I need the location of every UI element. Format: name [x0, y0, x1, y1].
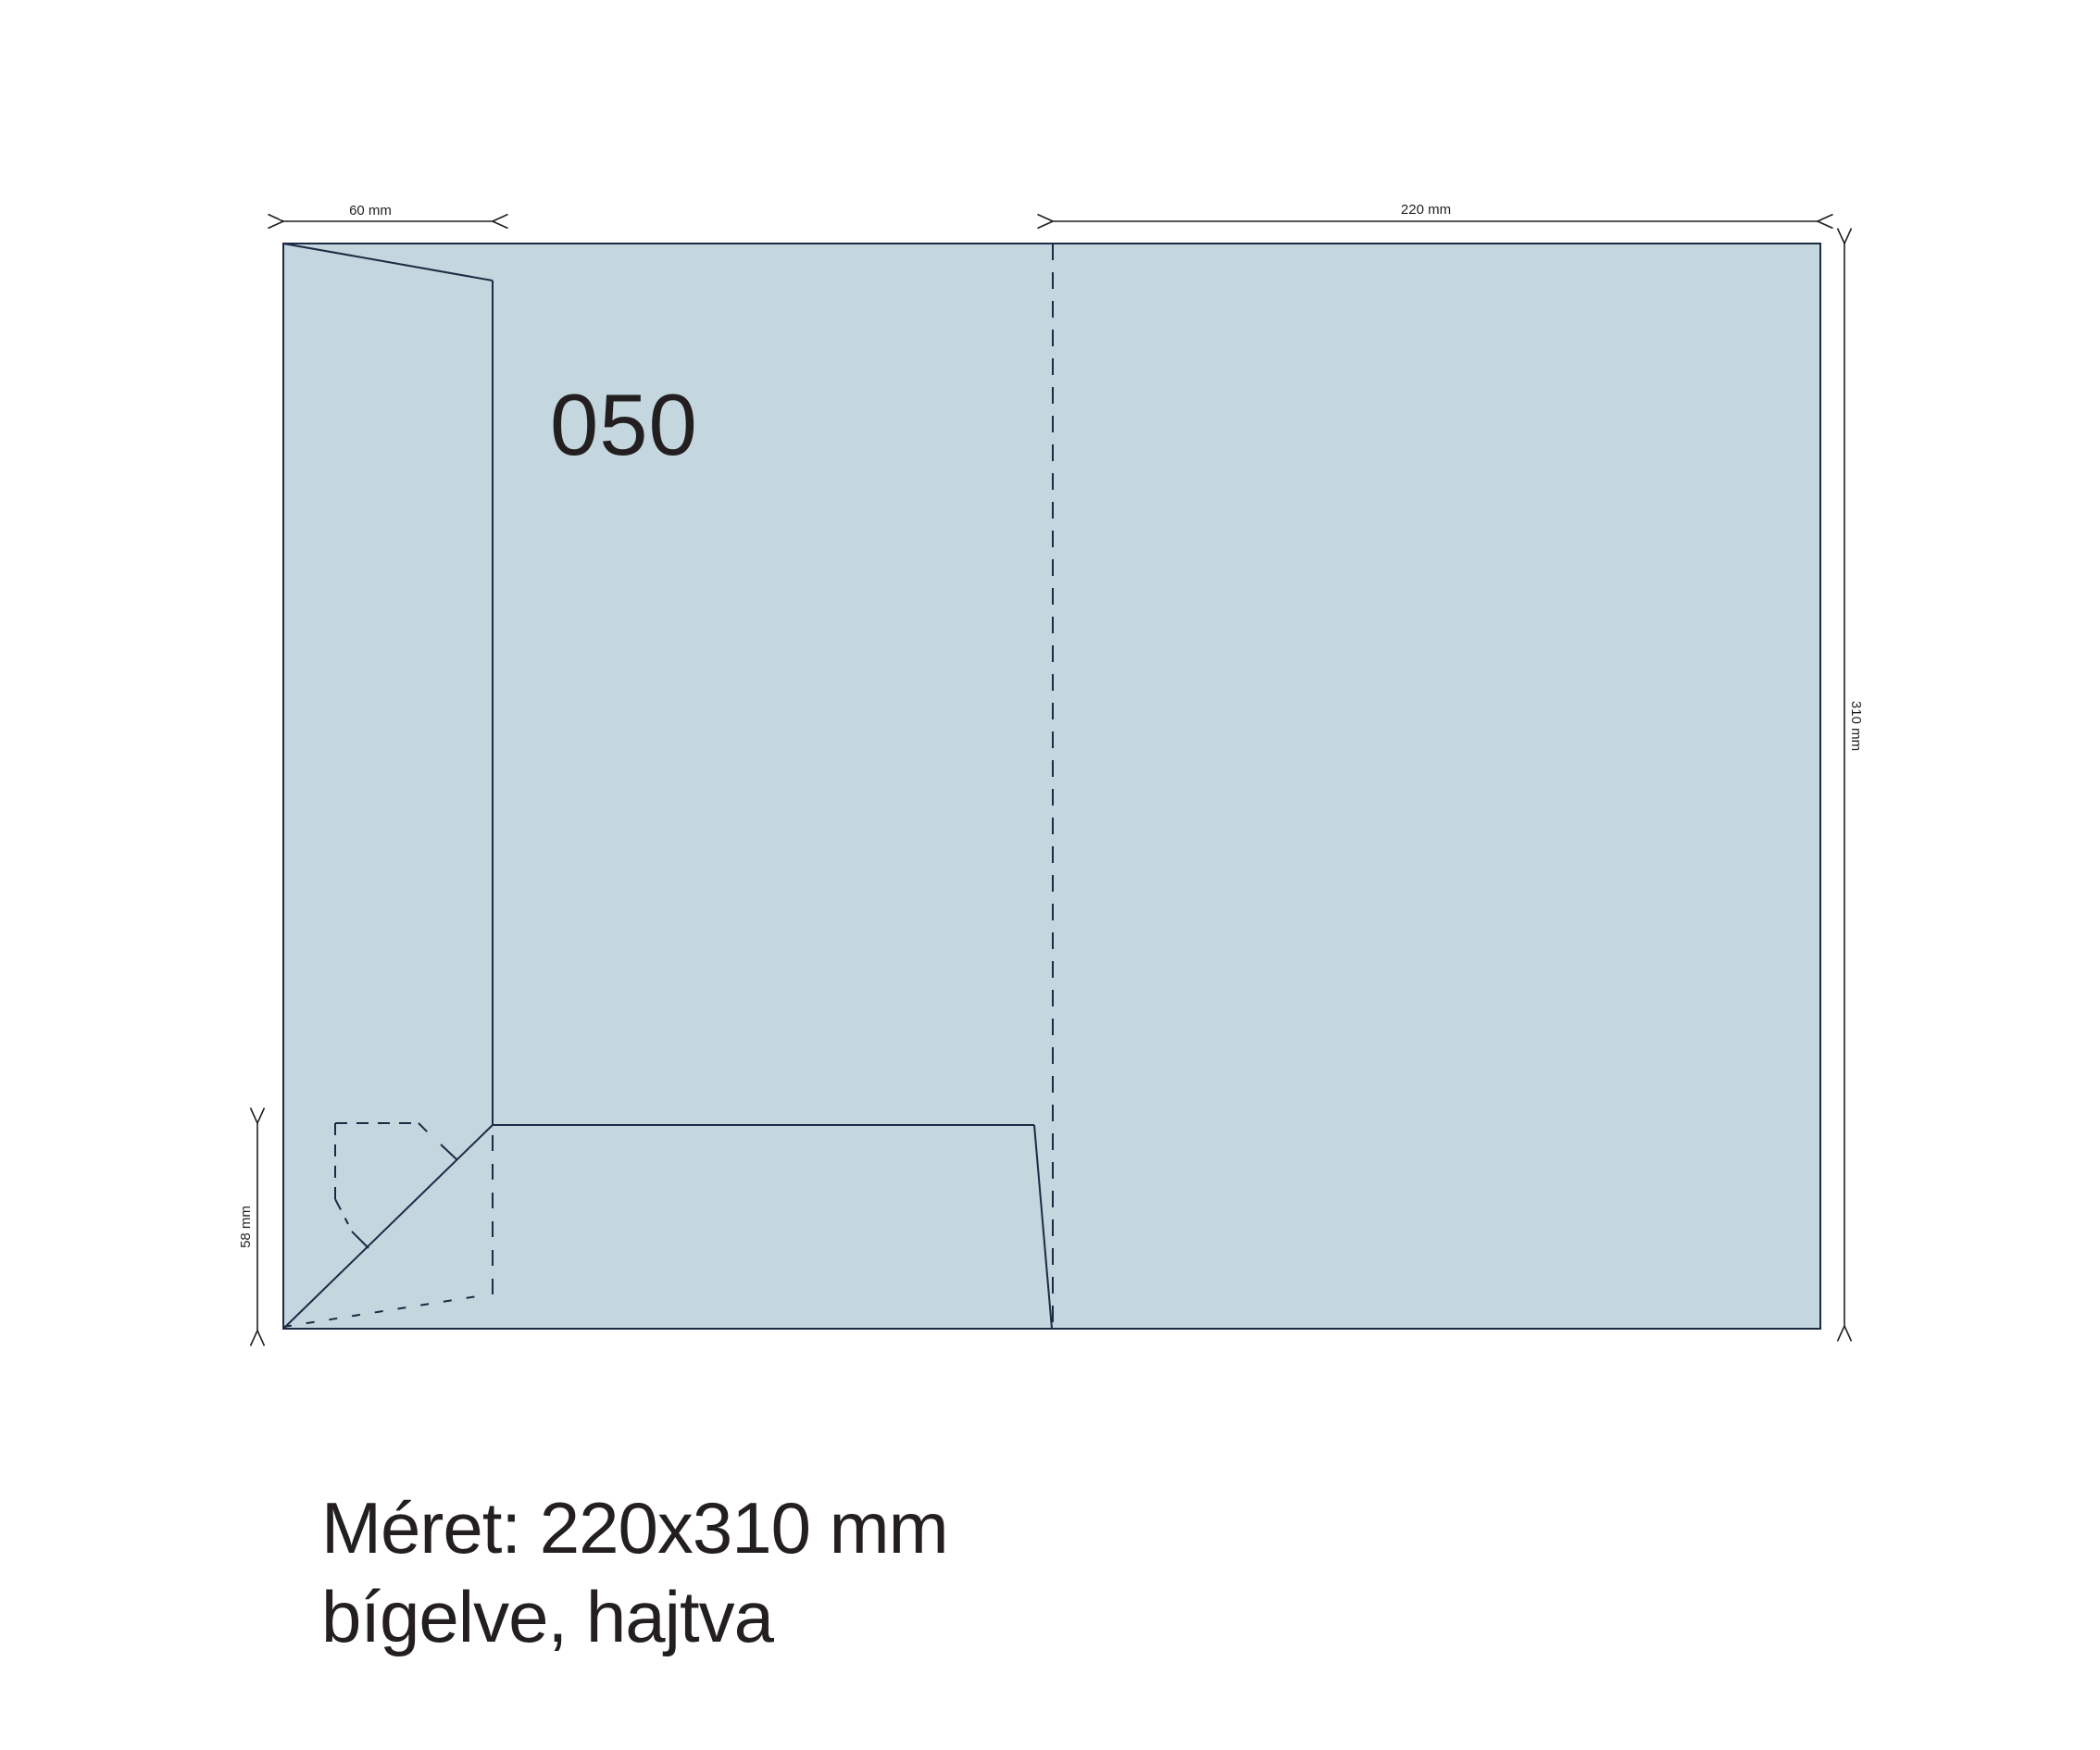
dim-label-flap-width: 60 mm [280, 203, 461, 219]
product-code: 050 [550, 381, 698, 469]
caption-finishing-line: bígelve, hajtva [321, 1572, 948, 1661]
dim-label-pocket-height: 58 mm [238, 1203, 255, 1251]
caption-size-line: Méret: 220x310 mm [321, 1483, 948, 1572]
dim-label-sheet-height: 310 mm [1847, 698, 1864, 754]
dim-label-panel-width: 220 mm [1053, 202, 1799, 219]
caption-block: Méret: 220x310 mm bígelve, hajtva [321, 1483, 948, 1661]
folder-dieline-drawing [0, 0, 2100, 1750]
dieline-page: 60 mm 220 mm 310 mm 58 mm 050 Méret: 220… [0, 0, 2100, 1750]
